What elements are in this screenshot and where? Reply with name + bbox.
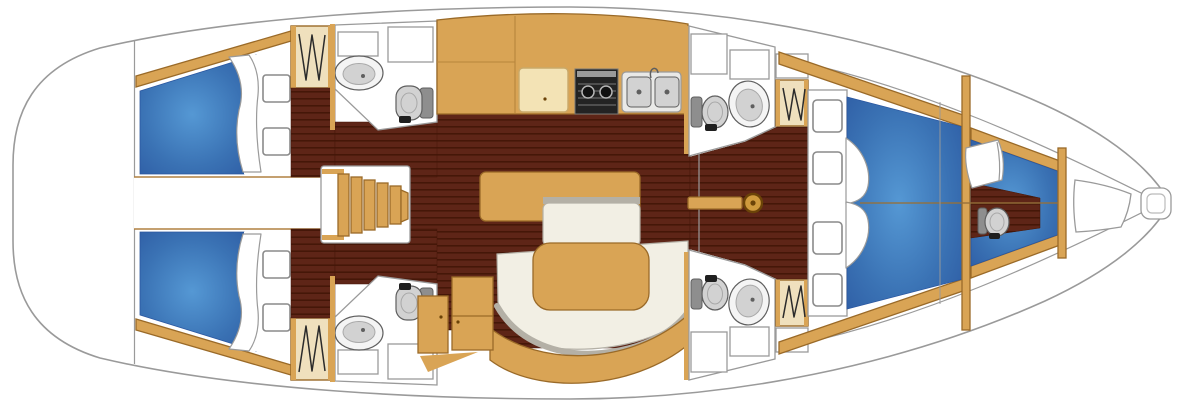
aft-head-port [330,21,437,177]
bulkhead [1058,148,1066,258]
double-sink-icon [622,68,681,112]
cabin-hatch [263,75,290,102]
toilet-icon [691,96,728,131]
bench-seat [543,203,640,246]
toilet-icon [396,86,433,123]
stove-icon [575,69,618,114]
chart-top [519,68,568,112]
saloon-table-main [533,243,649,310]
cabin-hatch [813,274,842,306]
cabin-floor [291,88,335,177]
yacht-floor-plan-canvas [0,0,1200,414]
cabin-hatch [813,222,842,254]
vanity-cabinet [388,27,433,62]
vanity-cabinet [691,34,727,74]
anchor-roller-icon [1141,188,1171,219]
galley [437,14,688,114]
vanity-cabinet [338,32,378,56]
companionway-steps [321,166,410,243]
cabin-hatch [813,100,842,132]
cabin-hatch [813,152,842,184]
cabin-hatch [263,128,290,155]
vanity-cabinet [730,50,769,79]
washbasin-icon [335,56,383,90]
mast-beam [688,197,742,209]
yacht-floor-plan [0,0,1200,414]
